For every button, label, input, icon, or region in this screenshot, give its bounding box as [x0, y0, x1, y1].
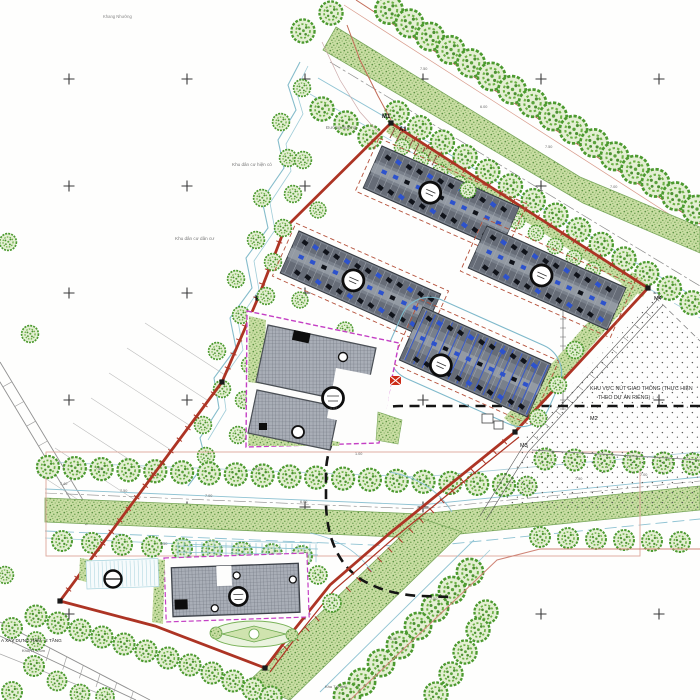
- svg-text:KHU VỰC NÚT GIAO THÔNG (THỰC H: KHU VỰC NÚT GIAO THÔNG (THỰC HIỆN: [590, 384, 693, 392]
- svg-text:Khu dân cư dân cư: Khu dân cư dân cư: [175, 236, 214, 241]
- svg-text:6.00: 6.00: [300, 500, 307, 504]
- svg-text:4.50: 4.50: [160, 542, 167, 546]
- svg-text:6.00: 6.00: [480, 105, 487, 109]
- svg-text:7.50: 7.50: [575, 477, 582, 481]
- svg-text:A XÂY DỰNG HẦM - 2 TẦNG: A XÂY DỰNG HẦM - 2 TẦNG: [1, 637, 62, 643]
- svg-text:7.00: 7.00: [610, 185, 617, 189]
- svg-text:0.07: 0.07: [330, 407, 337, 411]
- svg-text:7.00: 7.00: [205, 494, 212, 498]
- svg-text:7.45: 7.45: [95, 467, 102, 471]
- svg-text:M1: M1: [382, 114, 391, 120]
- svg-text:7.40: 7.40: [60, 482, 67, 486]
- svg-text:7.00: 7.00: [640, 473, 647, 477]
- svg-text:M3: M3: [520, 443, 528, 449]
- svg-text:1.00: 1.00: [355, 452, 362, 456]
- svg-text:Đường Nướng: Đường Nướng: [326, 125, 357, 130]
- svg-text:7.50: 7.50: [120, 489, 127, 493]
- svg-text:6.00: 6.00: [390, 637, 397, 641]
- svg-text:7.50: 7.50: [420, 67, 427, 71]
- svg-text:M2: M2: [590, 416, 598, 422]
- svg-text:A1: A1: [399, 127, 407, 133]
- svg-text:THEO DỰ ÁN RIÊNG) ↓: THEO DỰ ÁN RIÊNG) ↓: [598, 393, 654, 401]
- svg-text:Khu TT 4,6m: Khu TT 4,6m: [22, 648, 46, 653]
- svg-text:M4: M4: [654, 296, 662, 302]
- svg-text:Khu dân cư hiện có: Khu dân cư hiện có: [232, 162, 272, 167]
- svg-text:7.50: 7.50: [545, 145, 552, 149]
- svg-text:5.00: 5.00: [255, 467, 262, 471]
- svg-text:7.50: 7.50: [430, 597, 437, 601]
- svg-text:Khu 7,5 mét: Khu 7,5 mét: [325, 684, 347, 689]
- svg-text:Khang Nhường: Khang Nhường: [103, 14, 133, 19]
